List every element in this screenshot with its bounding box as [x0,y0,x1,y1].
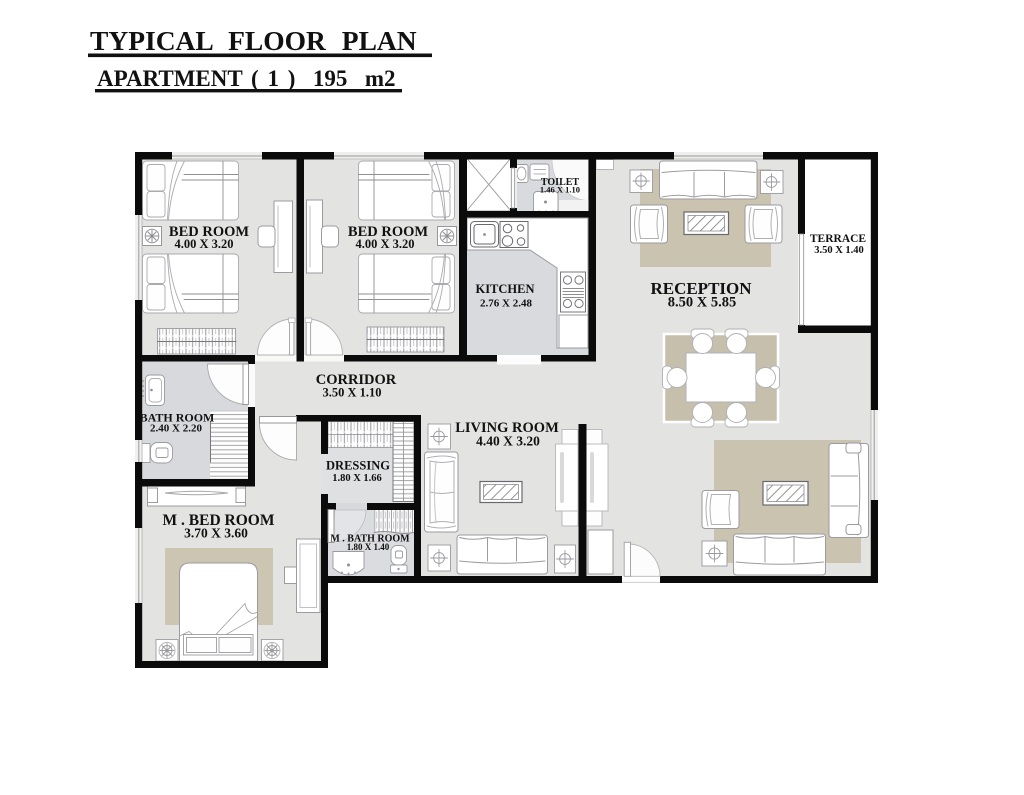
svg-text:DRESSING: DRESSING [326,459,390,473]
svg-text:4.40 X 3.20: 4.40 X 3.20 [476,434,540,449]
svg-text:2.76 X 2.48: 2.76 X 2.48 [480,298,532,310]
svg-text:4.00 X 3.20: 4.00 X 3.20 [355,237,414,251]
svg-text:1.80 X 1.40: 1.80 X 1.40 [347,542,390,552]
svg-text:APARTMENT ( 1 ) 195 m2: APARTMENT ( 1 ) 195 m2 [97,66,396,91]
svg-text:1.80 X 1.66: 1.80 X 1.66 [332,473,382,484]
svg-text:8.50 X 5.85: 8.50 X 5.85 [668,295,736,311]
svg-text:TYPICAL FLOOR PLAN: TYPICAL FLOOR PLAN [90,25,417,56]
svg-text:3.50 X 1.40: 3.50 X 1.40 [814,245,864,256]
svg-text:2.40 X 2.20: 2.40 X 2.20 [150,423,202,435]
svg-text:1.46 X 1.10: 1.46 X 1.10 [540,185,580,195]
svg-text:3.50 X 1.10: 3.50 X 1.10 [322,386,381,400]
svg-text:3.70 X 3.60: 3.70 X 3.60 [184,526,248,541]
svg-text:TERRACE: TERRACE [810,233,867,245]
svg-text:KITCHEN: KITCHEN [475,282,534,296]
svg-text:4.00 X 3.20: 4.00 X 3.20 [174,237,233,251]
